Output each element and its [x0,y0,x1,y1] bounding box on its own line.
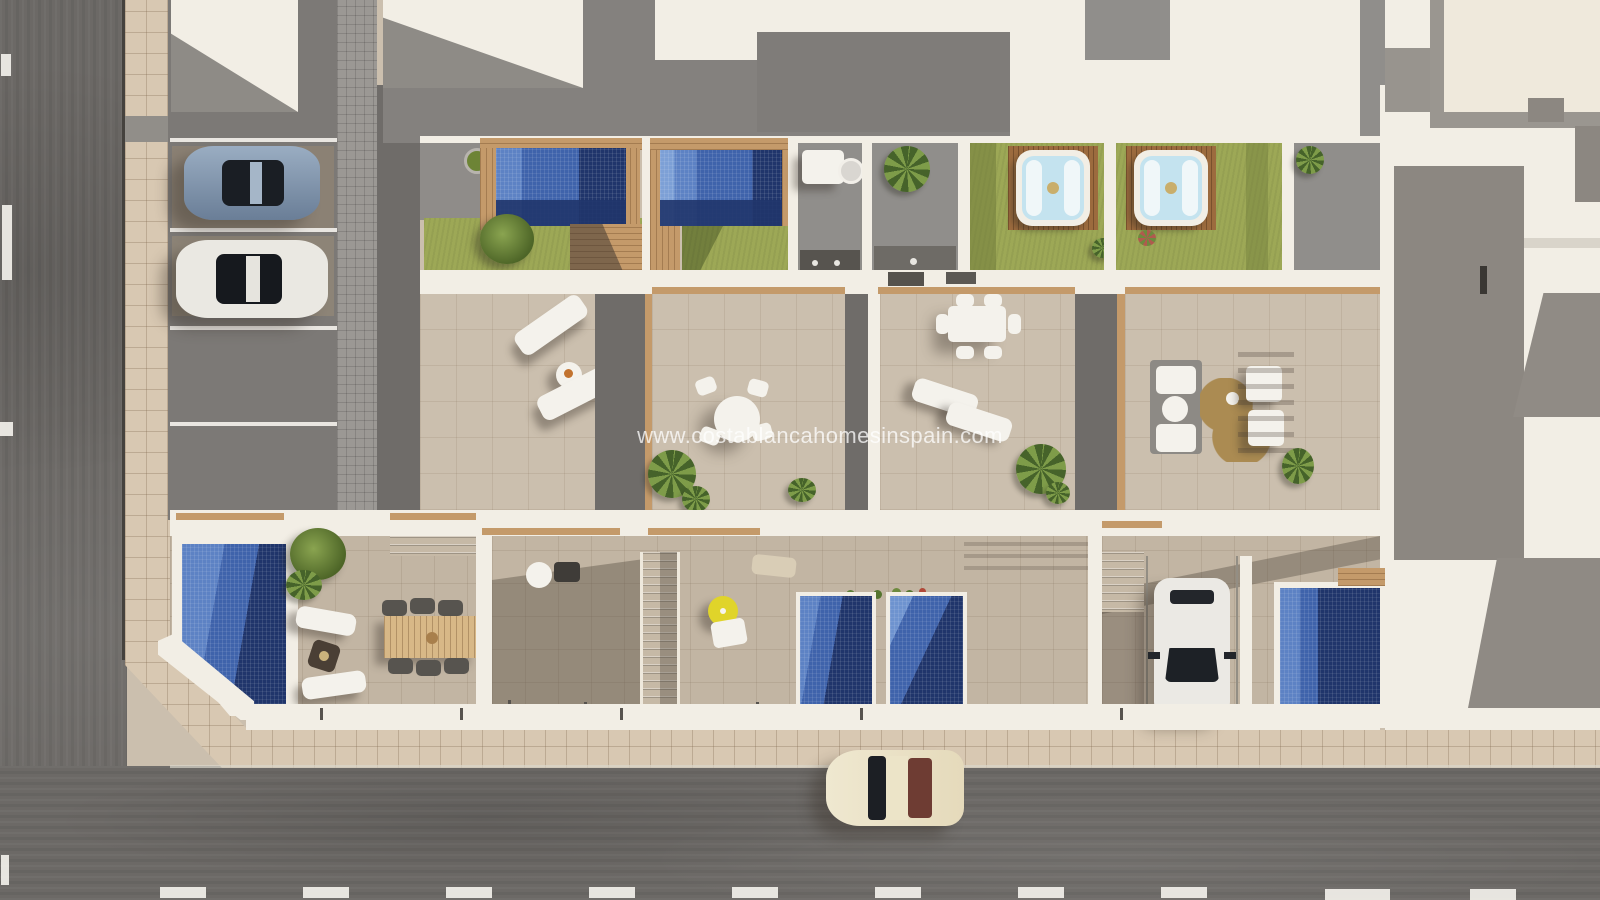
lane-dash [1,54,11,76]
kitchen-box [946,272,976,284]
service-alley [377,85,420,520]
parking-line [170,138,337,142]
fern [1046,482,1070,504]
dining-chair [444,658,469,674]
hot-tub [1134,150,1208,226]
potted-plant [1282,448,1314,484]
tub-seat [1026,160,1042,216]
terrace-divider [1075,294,1117,510]
wood-trim [176,513,284,520]
garden-wall-band [170,510,1380,536]
rooftop-pool [660,150,782,226]
car-white-parked [176,240,328,318]
neighbor-skylight [1480,266,1487,294]
dining-chair [984,346,1002,359]
garden-pool [890,596,963,714]
party-wall [868,294,880,510]
car-mirror [1224,652,1236,659]
wood-trim [878,287,1075,294]
fence-post [1120,708,1123,720]
pool-shadow [660,200,782,226]
stair-bulkhead [757,0,1010,32]
palm-tree [1296,146,1324,174]
car-roof [886,756,908,820]
party-wall [1282,138,1294,282]
dining-table [948,306,1006,342]
neighbor-roof [1444,0,1600,112]
lane-dash [446,887,492,898]
driveway-ramp [125,116,170,142]
wood-trim [390,513,476,520]
car-windshield [868,756,886,820]
side-table [838,158,864,184]
car-rear-glass [908,758,932,818]
boundary-wall [1240,556,1252,716]
road-bottom [0,766,1600,900]
fern [286,570,322,600]
neighbor-balcony-bar [1524,238,1600,248]
shrub [788,478,816,502]
terrace-divider [845,294,868,510]
dining-chair [388,658,413,674]
pool-deck [650,150,660,228]
wood-trim [1125,287,1380,294]
car-mirror [1148,652,1160,659]
car-roof-bar [250,162,262,204]
dining-chair [438,600,463,616]
garden-table [526,562,552,588]
sink-dot [910,258,917,265]
bbq-grill [554,562,580,582]
fence-post [460,708,463,720]
driveway-line [1236,556,1238,716]
dining-chair [956,346,974,359]
dining-table [384,616,478,658]
parking-line [170,228,337,232]
lane-dash [1018,887,1064,898]
party-wall [642,138,650,282]
hot-tub [1016,150,1090,226]
burner-dot [834,260,840,266]
water-texture [800,596,872,714]
parking-line [170,326,337,330]
dining-chair [984,294,1002,307]
parking-line [170,422,337,426]
stair-shadow [660,552,677,716]
lane-dash [160,887,206,898]
kitchen-box [888,272,924,286]
roof-band-white [1010,0,1385,143]
stairs [640,552,680,716]
flowering-plant [1138,230,1156,246]
lane-dash [2,205,12,280]
lane-dash [1,855,9,885]
wood-trim [1117,294,1125,510]
fence-post [620,708,623,720]
street-wall [246,704,1380,730]
neighbor-roof-box [1528,98,1564,122]
aerial-site-render: www.costablancahomesinspain.com [0,0,1600,900]
car-blue-parked [184,146,320,220]
car-white-driveway [1154,578,1230,718]
party-wall [862,143,872,282]
road-left [0,0,127,900]
water-texture [890,596,963,714]
party-wall [1088,536,1102,716]
lane-dash [1161,887,1207,898]
pool-deck [650,138,790,150]
dining-chair [416,660,441,676]
paver-walkway [337,0,377,520]
stairs [390,536,480,556]
sink-dot [812,260,818,266]
roof-box [1085,0,1170,60]
wood-trim [648,528,760,535]
tub-center [1047,182,1059,194]
lane-dash [0,422,13,436]
parasol-pole [720,608,726,614]
car-cream-road [826,750,964,826]
fence-post [320,708,323,720]
dining-chair [410,598,435,614]
neighbor-roof-box [1575,126,1600,202]
dining-chair [956,294,974,307]
lane-dash [589,887,635,898]
wood-trim [652,287,845,294]
fern [682,486,710,512]
dining-chair [382,600,407,616]
watermark: www.costablancahomesinspain.com [637,423,1003,449]
stair-bulkhead [655,0,757,60]
terrace-divider [595,294,645,510]
water-texture [1280,588,1380,710]
lawn-shadow [1246,143,1268,282]
roof-tree [480,214,534,264]
party-wall [958,138,970,282]
dining-chair [936,314,949,334]
sofa-cushion [1162,396,1188,422]
car-sunroof [1170,590,1214,604]
car-windshield [1165,648,1219,682]
tub-seat [1144,160,1160,216]
party-wall [476,536,492,716]
pergola-shadow [1238,352,1294,460]
driveway-line [1146,556,1148,716]
lane-dash [1325,889,1390,900]
pergola-shadow [964,540,1088,570]
lane-dash [732,887,778,898]
garden-pool [800,596,872,714]
sofa-cushion [1156,366,1196,394]
table-centerpiece [426,632,438,644]
fire-bowl [318,650,331,663]
stair-shadow [1102,612,1144,716]
neighbor-roof-slab [1394,166,1524,560]
roof-box [757,32,1010,132]
lawn-shadow [970,143,996,282]
tub-center [1165,182,1177,194]
palm-tree [884,146,930,192]
party-wall [1104,138,1116,282]
party-wall [788,138,798,282]
neighbor-roof-shadow [1385,48,1430,112]
wood-trim [482,528,620,535]
fence-post [860,708,863,720]
tub-seat [1064,160,1080,216]
lane-dash [875,887,921,898]
wood-trim [1102,521,1162,528]
lane-dash [1470,889,1516,900]
tub-seat [1182,160,1198,216]
car-roof-bar [246,256,260,302]
pool-deck [624,148,640,230]
sofa-cushion [1156,424,1196,452]
dining-chair [1008,314,1021,334]
drink-tray [564,369,573,378]
lane-dash [303,887,349,898]
garden-pool [1280,588,1380,710]
stairs [1102,552,1144,612]
